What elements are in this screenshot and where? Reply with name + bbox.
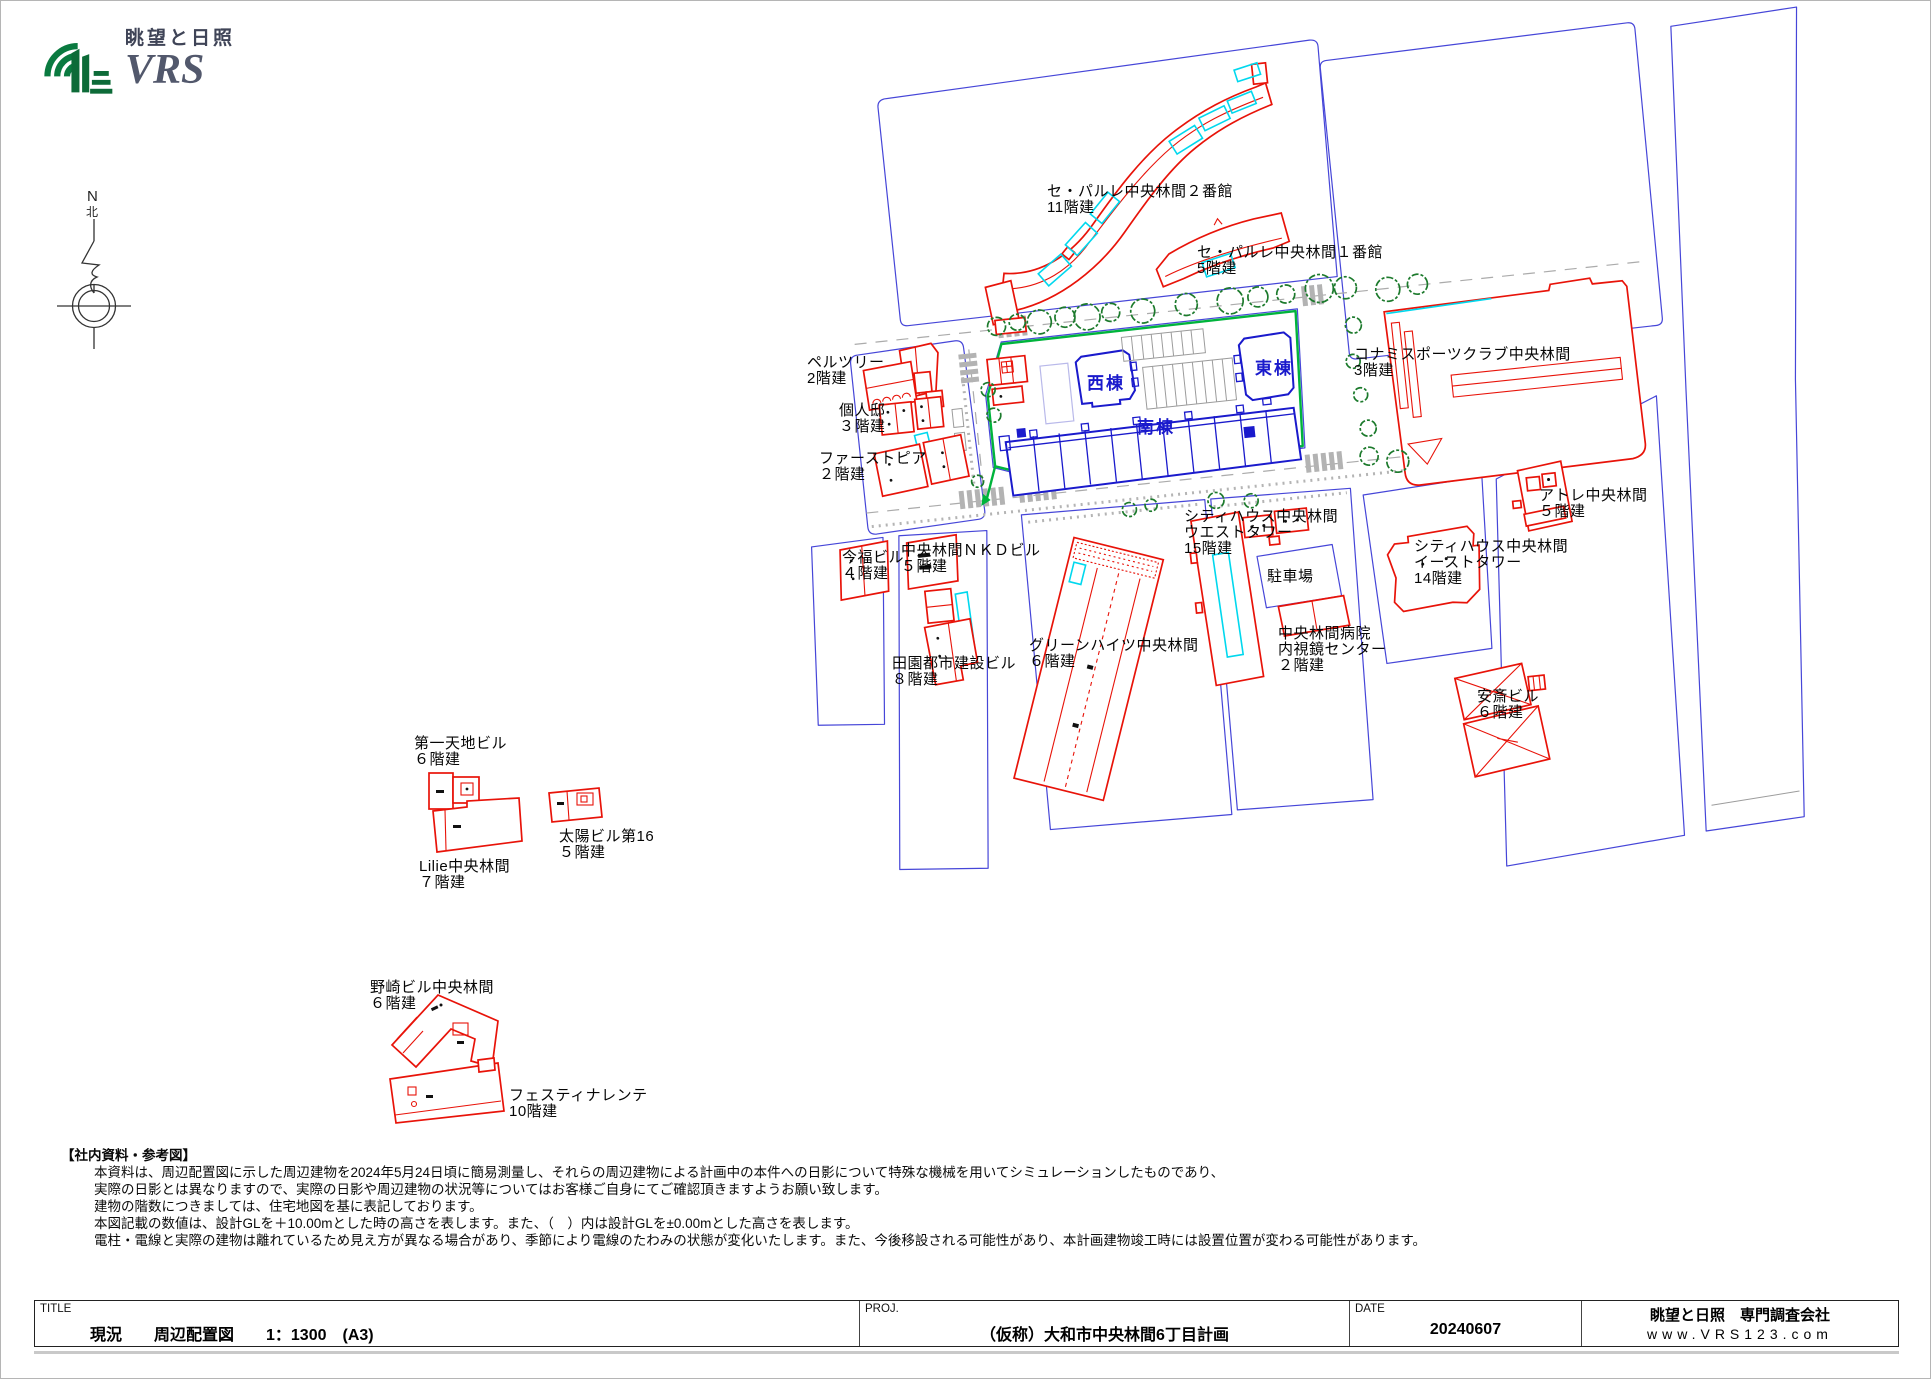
notes-block: 【社内資料・参考図】 本資料は、周辺配置図に示した周辺建物を2024年5月24日… <box>61 1147 1901 1249</box>
notes-line: 本図記載の数値は、設計GLを＋10.00mとした時の高さを表します。また、（ ）… <box>61 1215 1901 1232</box>
label-kojintei: 個人邸３階建 <box>839 402 886 435</box>
notes-line: 実際の日影とは異なりますので、実際の日影や周辺建物の状況等についてはお客様ご自身… <box>61 1181 1901 1198</box>
north-compass: N 北 <box>57 188 131 349</box>
notes-line: 建物の階数につきましては、住宅地図を基に表記しております。 <box>61 1198 1901 1215</box>
title-label: TITLE <box>40 1303 71 1315</box>
label-taiyo: 太陽ビル第16５階建 <box>559 827 654 861</box>
sheet-bottom-rule <box>34 1351 1899 1354</box>
proj-cell: PROJ. （仮称）大和市中央林間6丁目計画 <box>860 1301 1350 1346</box>
label-parking: 駐車場 <box>1267 568 1314 585</box>
notes-line: 電柱・電線と実際の建物は離れているため見え方が異なる場合があり、季節により電線の… <box>61 1232 1901 1249</box>
label-daiichitenchi: 第一天地ビル６階建 <box>414 734 507 768</box>
date-cell: DATE 20240607 <box>1350 1301 1582 1346</box>
map-rotated-layer <box>752 1 1882 936</box>
date-value: 20240607 <box>1350 1321 1581 1339</box>
label-denen: 田園都市建設ビル８階建 <box>892 655 1016 688</box>
label-lilie: Lilie中央林間７階建 <box>419 858 510 891</box>
label-nkd: 中央林間ＮＫＤビル５階建 <box>901 542 1041 575</box>
building-lavender <box>1040 363 1074 424</box>
company-name: 眺望と日照 専門調査会社 <box>1582 1304 1898 1325</box>
company-cell: 眺望と日照 専門調査会社 www.VRS123.com <box>1582 1301 1898 1346</box>
road-markings <box>848 240 1801 890</box>
proj-label: PROJ. <box>865 1303 899 1315</box>
label-south-wing: 南棟 <box>1137 417 1175 437</box>
proj-value: （仮称）大和市中央林間6丁目計画 <box>860 1321 1349 1345</box>
label-atre: アトレ中央林間５階建 <box>1539 487 1648 520</box>
label-east-wing: 東棟 <box>1255 358 1293 378</box>
parking-stalls <box>1121 326 1236 411</box>
building-festina <box>390 1058 504 1123</box>
label-imafuku: 今福ビル４階建 <box>842 549 904 582</box>
date-label: DATE <box>1355 1303 1385 1315</box>
title-value: 現況 周辺配置図 1：1300 (A3) <box>35 1321 859 1345</box>
company-website: www.VRS123.com <box>1582 1326 1898 1342</box>
building-konami <box>1383 274 1647 487</box>
label-separle1: セ・パルレ中央林間１番館5階建 <box>1197 244 1383 277</box>
label-cityhouse-east: シティハウス中央林間イーストタワー14階建 <box>1414 538 1568 587</box>
site-plan-sheet: 眺望と日照 VRS <box>0 0 1931 1379</box>
building-site-nw-annex <box>987 356 1030 406</box>
title-cell: TITLE 現況 周辺配置図 1：1300 (A3) <box>35 1301 860 1346</box>
label-festina: フェスティナレンテ10階建 <box>509 1087 648 1120</box>
title-block: TITLE 現況 周辺配置図 1：1300 (A3) PROJ. （仮称）大和市… <box>34 1300 1899 1347</box>
label-west-wing: 西棟 <box>1087 373 1125 393</box>
notes-header: 【社内資料・参考図】 <box>61 1147 1901 1164</box>
building-south-wing <box>998 400 1301 497</box>
compass-kita-letter: 北 <box>86 205 98 219</box>
label-hospital: 中央林間病院内視鏡センター２階建 <box>1278 624 1387 674</box>
compass-n-letter: N <box>87 188 98 205</box>
building-taiyo <box>549 788 602 822</box>
label-cityhouse-west: シティハウス中央林間ウエストタワー15階建 <box>1184 508 1338 557</box>
notes-line: 本資料は、周辺配置図に示した周辺建物を2024年5月24日頃に簡易測量し、それら… <box>61 1164 1901 1181</box>
